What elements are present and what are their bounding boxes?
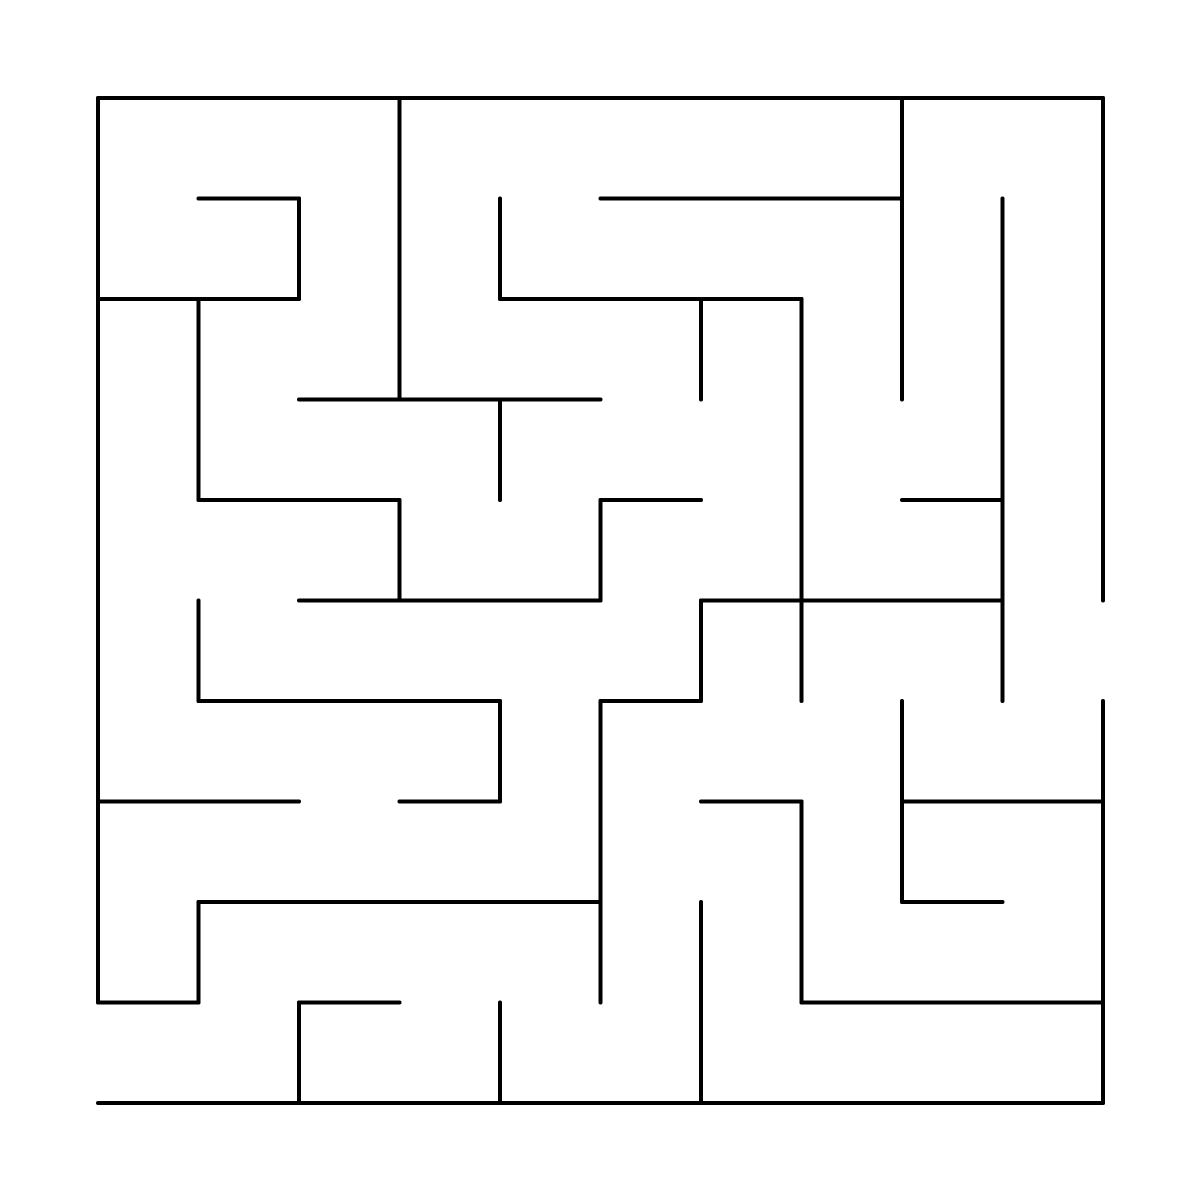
maze-svg — [0, 0, 1200, 1200]
maze-page — [0, 0, 1200, 1200]
